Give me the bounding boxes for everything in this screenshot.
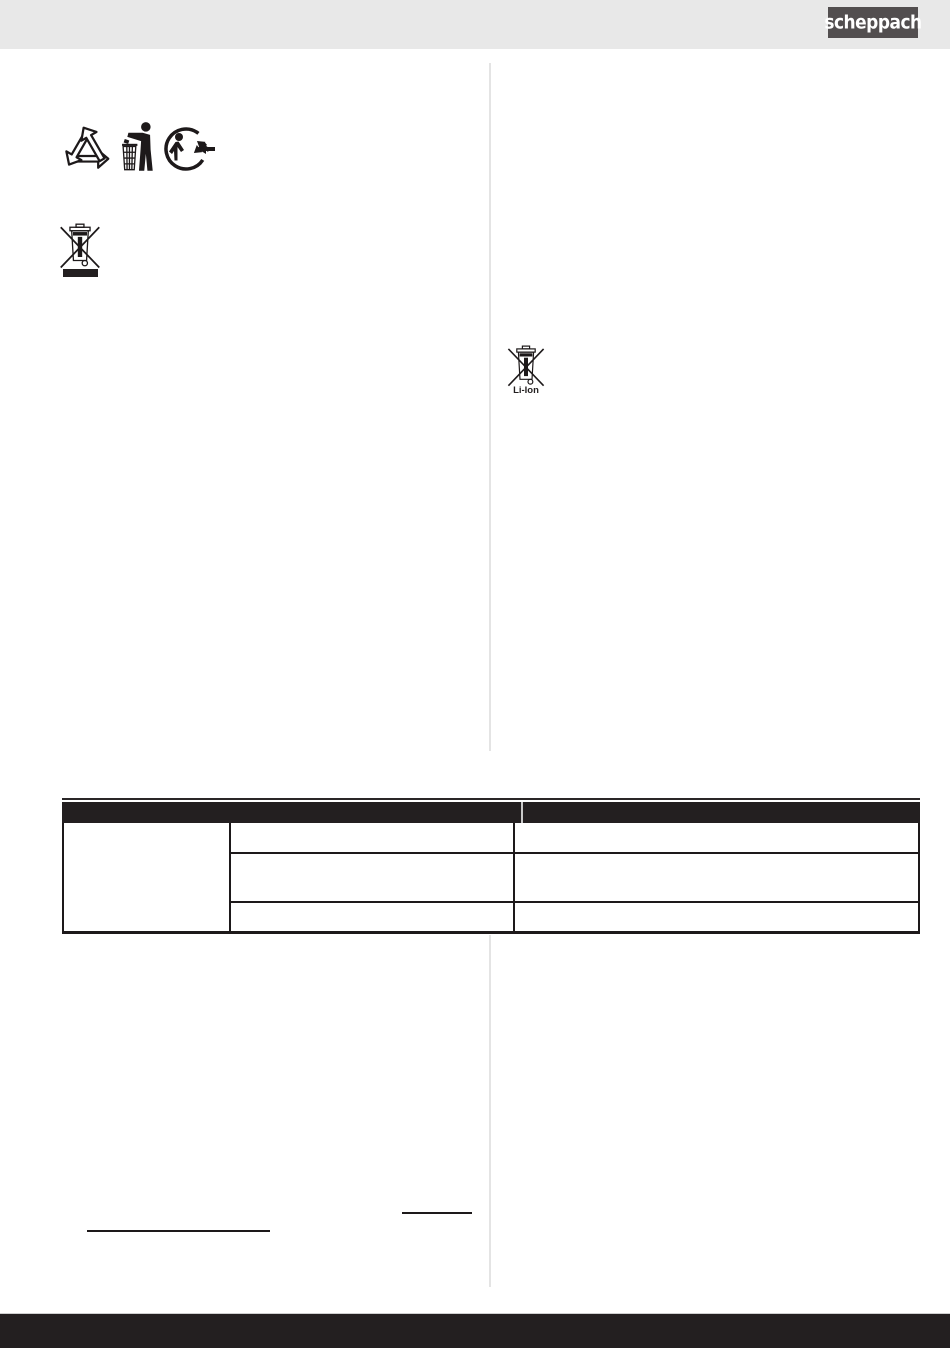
weee-black-bar xyxy=(63,269,98,277)
troubleshooting-table xyxy=(62,798,920,934)
table-cell xyxy=(515,823,918,854)
weee-crossed-bin-icon xyxy=(58,222,102,271)
table-column-remedy xyxy=(515,823,920,931)
footer-bar xyxy=(0,1314,950,1348)
top-header-bar: scheppach xyxy=(0,0,950,49)
table-cell xyxy=(515,854,918,903)
triman-icon xyxy=(162,124,217,174)
scheppach-logo-text: scheppach xyxy=(824,11,921,33)
scheppach-logo: scheppach xyxy=(828,7,918,38)
table-cell-fault-merged xyxy=(62,823,231,931)
table-cell xyxy=(515,903,918,931)
link-underline-right[interactable] xyxy=(402,1212,472,1214)
manual-page: scheppach xyxy=(0,0,950,1348)
battery-type-label: Li-Ion xyxy=(500,385,552,396)
battery-crossed-bin-icon xyxy=(506,344,546,389)
table-column-cause xyxy=(231,823,515,931)
table-bottom-border xyxy=(62,931,920,934)
recycling-loop-icon xyxy=(59,119,115,175)
table-body xyxy=(62,823,920,931)
table-cell xyxy=(231,903,513,931)
column-divider-lower xyxy=(489,935,491,1287)
tidy-man-icon xyxy=(121,121,158,174)
table-cell xyxy=(231,823,513,854)
table-header-row xyxy=(62,802,920,823)
column-divider-upper xyxy=(489,63,491,751)
table-cell xyxy=(231,854,513,903)
link-underline-left[interactable] xyxy=(87,1230,270,1232)
